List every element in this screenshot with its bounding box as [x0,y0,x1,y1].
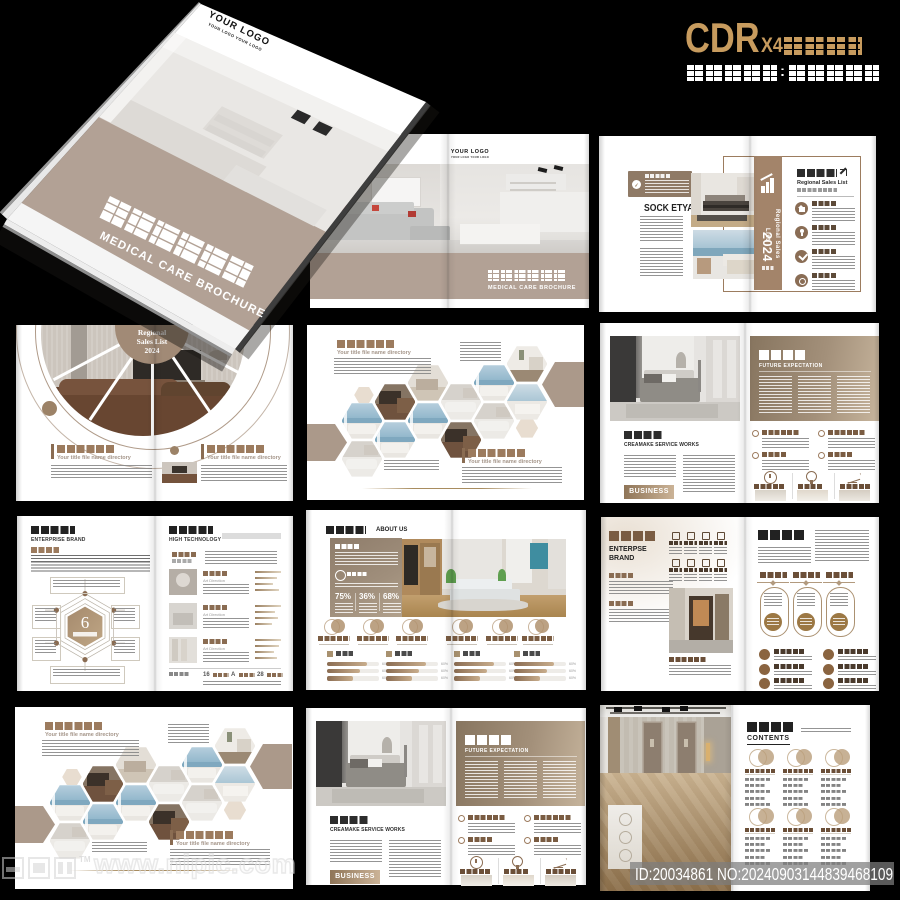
svg-text:6: 6 [81,613,90,632]
